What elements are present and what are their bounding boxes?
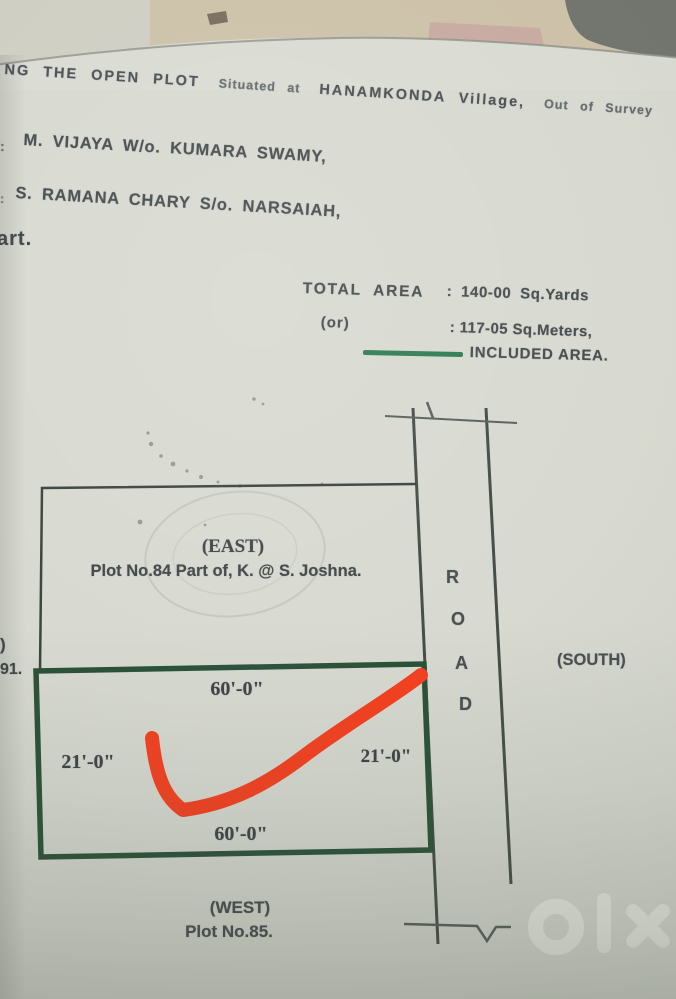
road-bottom-tick <box>404 924 511 941</box>
meters-value: : 117-05 Sq.Meters, <box>449 319 592 340</box>
road-letter-o: O <box>451 609 465 629</box>
left-cutoff-2: 91. <box>0 661 22 678</box>
road-label: R O A D <box>446 567 472 714</box>
or-label: (or) <box>320 314 350 332</box>
dimension-bottom: 60'-0" <box>214 823 267 845</box>
road-letter-a: A <box>455 653 468 673</box>
road-letter-d: D <box>459 694 472 714</box>
cutoff-word: art. <box>0 228 32 251</box>
ink-speckles <box>138 397 324 526</box>
road-letter-r: R <box>446 567 459 587</box>
olx-pipe-icon <box>597 893 611 953</box>
east-label: (EAST) <box>202 536 264 557</box>
road-top-tick <box>385 416 517 423</box>
south-label: (SOUTH) <box>557 651 626 669</box>
owner2-line: S. RAMANA CHARY S/o. NARSAIAH, <box>15 184 342 222</box>
dimension-right: 21'-0" <box>361 746 412 767</box>
olx-x-icon <box>621 901 675 951</box>
header-line1-part4: Out of Survey <box>544 97 654 118</box>
road-top-notch <box>427 402 433 418</box>
photographed-document: NG THE OPEN PLOT Situated at HANAMKONDA … <box>0 0 676 999</box>
west-plot-text: Plot No.85. <box>185 922 273 941</box>
owner1-line: M. VIJAYA W/o. KUMARA SWAMY, <box>23 131 327 167</box>
owner1-prefix: : <box>0 138 5 154</box>
included-area-label: INCLUDED AREA. <box>470 344 609 365</box>
total-area-value: : 140-00 Sq.Yards <box>446 283 589 304</box>
owner2-prefix: : <box>0 191 4 206</box>
dimension-left: 21'-0" <box>61 751 114 773</box>
olx-o-icon <box>528 899 584 955</box>
west-label: (WEST) <box>210 898 270 917</box>
dimension-top: 60'-0" <box>210 678 263 700</box>
included-area-legend-line <box>363 350 463 357</box>
olx-logo <box>527 892 676 960</box>
road-right-line <box>486 408 511 884</box>
east-plot-text: Plot No.84 Part of, K. @ S. Joshna. <box>91 562 362 580</box>
red-check-mark <box>152 675 421 810</box>
total-area-label: TOTAL AREA <box>302 280 424 302</box>
left-cutoff-1: ) <box>0 635 6 654</box>
plot-diagram: (EAST) Plot No.84 Part of, K. @ S. Joshn… <box>0 394 676 974</box>
header-line1-part2: Situated at <box>218 76 301 95</box>
